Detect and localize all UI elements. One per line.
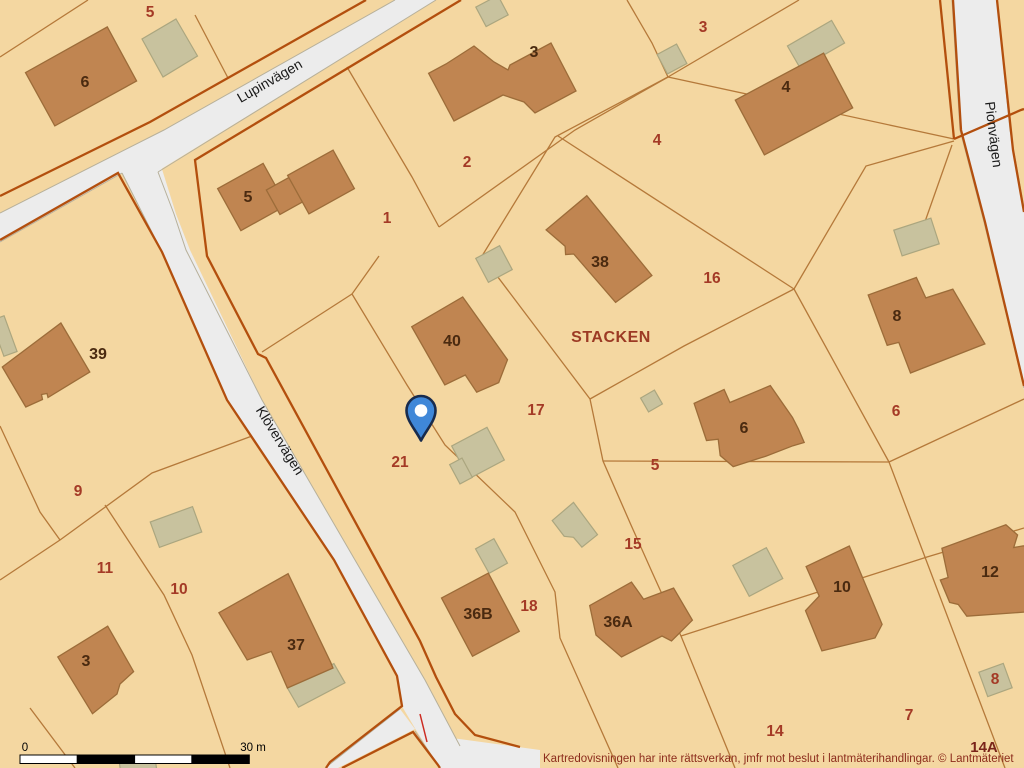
- svg-text:3: 3: [82, 653, 91, 670]
- svg-text:11: 11: [97, 560, 114, 577]
- svg-text:37: 37: [287, 637, 305, 654]
- svg-text:2: 2: [463, 154, 472, 171]
- svg-text:38: 38: [591, 254, 609, 271]
- svg-text:1: 1: [383, 210, 392, 227]
- svg-text:17: 17: [527, 402, 544, 419]
- svg-text:5: 5: [244, 189, 253, 206]
- svg-text:9: 9: [74, 483, 83, 500]
- svg-text:40: 40: [443, 333, 461, 350]
- svg-text:STACKEN: STACKEN: [571, 329, 651, 346]
- svg-text:7: 7: [905, 707, 914, 724]
- svg-text:5: 5: [146, 4, 155, 21]
- svg-text:Kartredovisningen har inte rät: Kartredovisningen har inte rättsverkan, …: [543, 753, 1014, 765]
- svg-text:4: 4: [782, 79, 791, 96]
- svg-text:6: 6: [81, 74, 90, 91]
- svg-text:3: 3: [699, 19, 708, 36]
- svg-text:15: 15: [624, 536, 642, 553]
- svg-text:30 m: 30 m: [240, 742, 266, 754]
- svg-text:4: 4: [653, 132, 662, 149]
- svg-text:6: 6: [740, 420, 749, 437]
- svg-text:16: 16: [703, 270, 721, 287]
- svg-text:5: 5: [651, 457, 660, 474]
- svg-text:36A: 36A: [603, 614, 633, 631]
- svg-text:8: 8: [991, 671, 1000, 688]
- svg-text:36B: 36B: [463, 606, 492, 623]
- svg-text:0: 0: [22, 742, 28, 754]
- svg-text:12: 12: [981, 564, 999, 581]
- svg-text:10: 10: [170, 581, 187, 598]
- svg-text:10: 10: [833, 579, 851, 596]
- svg-text:21: 21: [391, 454, 409, 471]
- svg-text:14: 14: [766, 723, 784, 740]
- svg-text:39: 39: [89, 346, 107, 363]
- svg-text:3: 3: [530, 44, 539, 61]
- svg-text:18: 18: [520, 598, 538, 615]
- svg-text:6: 6: [892, 403, 901, 420]
- svg-text:8: 8: [893, 308, 902, 325]
